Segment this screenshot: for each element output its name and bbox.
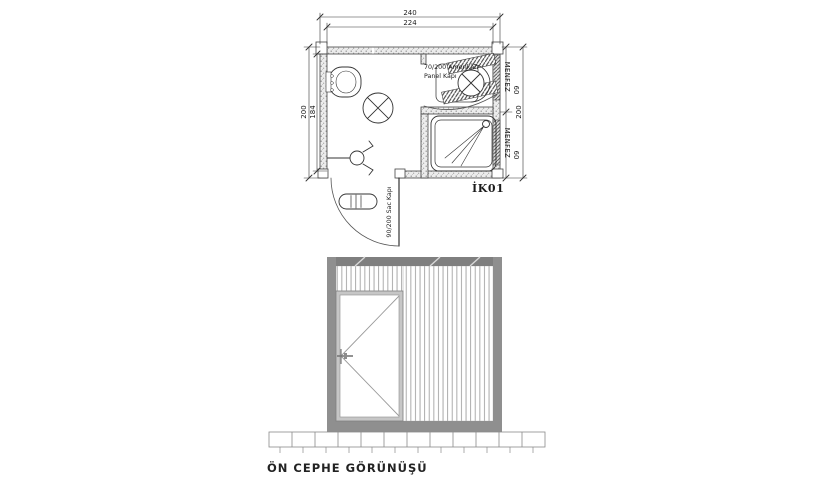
elevation-right-post [493, 257, 502, 432]
corner-post-bottom-right [492, 169, 503, 178]
corner-post-top-left [316, 42, 327, 54]
wall-bottom-right [397, 171, 500, 178]
wall-stub-wc [421, 54, 426, 64]
panel-door-label-line2: Panel Kapı [424, 73, 457, 80]
dim-vent-top: 60 [512, 86, 520, 95]
dim-vent-bottom: 60 [512, 151, 520, 160]
cladding-above-door [336, 266, 403, 291]
corner-post-top-right [492, 42, 503, 54]
wall-interior-vertical [421, 114, 428, 178]
drawing-sheet: 240 224 200 184 200 MENFEZ MENFEZ 60 60 … [0, 0, 834, 495]
architectural-drawing: 240 224 200 184 200 MENFEZ MENFEZ 60 60 … [0, 0, 834, 495]
elevation-door [336, 291, 403, 421]
switch-icon [327, 141, 373, 175]
ground-strip [269, 432, 545, 453]
shower-tray [431, 116, 496, 171]
switch-fork-upper [363, 141, 373, 152]
dim-left-outer: 200 [300, 105, 308, 118]
cladding-right [403, 266, 493, 421]
threshold-step [339, 194, 377, 209]
wall-top-joint [372, 48, 374, 54]
wall-left [320, 47, 327, 178]
elevation-caption: ÖN CEPHE GÖRÜNÜŞÜ [267, 460, 428, 475]
sink [326, 67, 361, 97]
dim-left-inner: 184 [309, 105, 317, 119]
door-jamb-left [318, 169, 328, 178]
light-cross [367, 97, 388, 118]
vent-top-label: MENFEZ [503, 62, 511, 93]
vent-bottom-label: MENFEZ [503, 128, 511, 159]
sink-wall-mount [326, 72, 331, 92]
sink-bowl [336, 71, 356, 93]
threshold-outline [339, 194, 377, 209]
elevation-left-post [327, 257, 336, 432]
shower-outer [431, 116, 496, 171]
dim-right-outer: 200 [515, 105, 523, 118]
sink-tap-dot-1 [331, 75, 334, 78]
elevation-bottom-beam [327, 421, 502, 432]
switch-fork-lower [363, 164, 373, 175]
sink-tap-dot-2 [331, 82, 334, 85]
wall-top [320, 47, 500, 54]
panel-door-label-line1: 70/200 Amerikan [424, 64, 478, 71]
entry-door-label: 90/200 Sac Kapı [386, 186, 393, 237]
wc-area [424, 53, 498, 109]
switch-circle [350, 151, 364, 165]
shower-slope-lines [445, 126, 484, 166]
door-jamb-right [395, 169, 405, 178]
vent-bottom-hatch [493, 120, 500, 165]
ceiling-light-icon [363, 93, 393, 123]
unit-code-label: İK01 [472, 181, 504, 195]
sink-tap-dot-3 [331, 89, 334, 92]
floor-plan: 240 224 200 184 200 MENFEZ MENFEZ 60 60 … [300, 9, 527, 246]
ground-ticks [280, 447, 533, 453]
front-elevation: ÖN CEPHE GÖRÜNÜŞÜ [267, 257, 545, 475]
dim-top-outer: 240 [403, 9, 416, 17]
dim-top-inner: 224 [403, 19, 417, 27]
